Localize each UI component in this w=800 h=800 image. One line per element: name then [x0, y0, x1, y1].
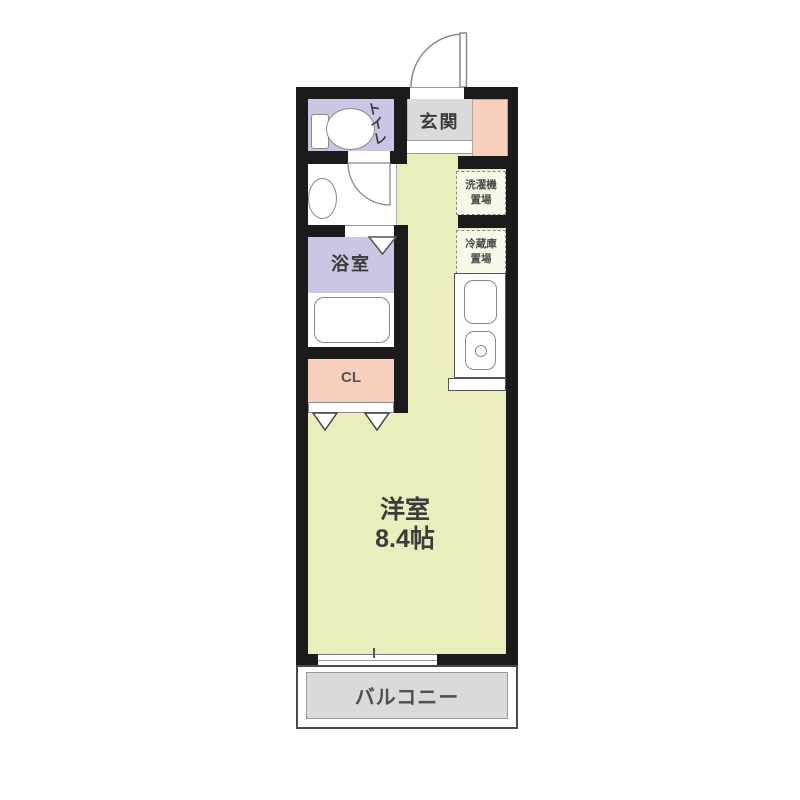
- genkan-label: 玄関: [407, 108, 472, 134]
- fridge-space: 冷蔵庫 置場: [456, 230, 506, 274]
- kitchen-sink-icon: [464, 280, 497, 324]
- stove-burner-icon: [465, 331, 496, 370]
- shoe-cabinet: [472, 99, 508, 158]
- washer-label-line1: 洗濯機: [465, 178, 497, 193]
- window-middle-line: [318, 660, 437, 661]
- bathroom-label: 浴室: [308, 250, 394, 276]
- window-center-tick: [373, 648, 375, 658]
- kitchen-ledge: [448, 378, 506, 391]
- toilet-door-arc: [344, 162, 398, 212]
- wall-left: [296, 87, 308, 666]
- fridge-label-line2: 置場: [471, 252, 492, 267]
- closet-label: CL: [308, 369, 394, 386]
- balcony-floor: バルコニー: [306, 672, 508, 719]
- washbasin-icon: [308, 178, 337, 219]
- burner-circle-icon: [475, 345, 487, 357]
- entrance-door-leaf: [460, 33, 467, 87]
- main-room-size: 8.4帖: [330, 525, 480, 554]
- balcony-label: バルコニー: [355, 681, 460, 710]
- entrance-door-arc: [398, 26, 482, 90]
- bathroom-bottom-wall: [296, 347, 408, 359]
- toilet-bottom-wall-left: [308, 151, 348, 164]
- closet-door-markers: [308, 412, 394, 434]
- bathtub-icon: [314, 297, 390, 343]
- floorplan-canvas: トイレ 玄関 浴室 CL 洗濯機 置場 冷蔵庫 置場: [0, 0, 800, 800]
- wall-stub-2: [458, 215, 518, 228]
- bathroom-top-wall: [308, 225, 345, 237]
- genkan-step: [407, 140, 472, 154]
- wall-stub-1: [458, 156, 518, 169]
- main-room-name: 洋室: [330, 496, 480, 525]
- fridge-label-line1: 冷蔵庫: [465, 237, 497, 252]
- wall-top-left-segment: [296, 87, 410, 99]
- main-room-label: 洋室 8.4帖: [330, 496, 480, 554]
- wall-right: [506, 87, 518, 666]
- balcony: バルコニー: [296, 665, 518, 729]
- washer-label-line2: 置場: [471, 193, 492, 208]
- washer-space: 洗濯機 置場: [456, 171, 506, 215]
